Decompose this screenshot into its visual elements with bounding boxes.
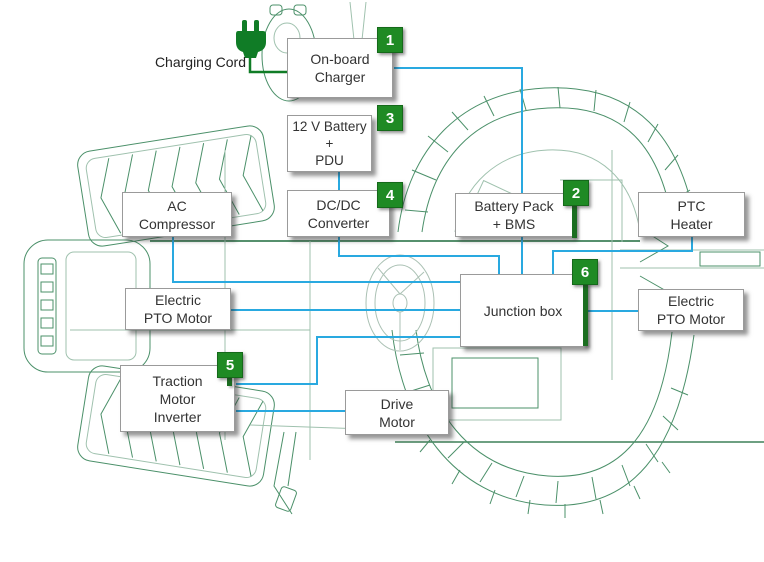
component-label: Battery Pack (474, 197, 553, 215)
component-box-drive-motor: Drive Motor (345, 390, 449, 435)
badge-5-stem (227, 377, 232, 386)
component-box-battery-pack-bms: Battery Pack + BMS (455, 193, 573, 237)
badge-4: 4 (377, 182, 403, 208)
badge-6: 6 (572, 259, 598, 285)
component-label: Charger (315, 68, 366, 86)
component-box-dcdc-converter: DC/DC Converter (287, 190, 390, 237)
component-label: + (326, 135, 334, 152)
component-label: Traction (152, 372, 202, 390)
component-label: Electric (155, 291, 201, 309)
component-label: Junction box (484, 302, 563, 320)
hv-connections (173, 68, 692, 411)
component-box-junction-box: Junction box (460, 274, 586, 347)
component-label: Converter (308, 214, 369, 232)
badge-2-stem (572, 205, 577, 238)
component-label: Electric (668, 292, 714, 310)
component-label: + BMS (493, 215, 535, 233)
component-box-electric-pto-motor-left: Electric PTO Motor (125, 288, 231, 330)
component-label: Motor (160, 390, 196, 408)
component-label: PTO Motor (144, 309, 212, 327)
component-label: Compressor (139, 215, 215, 233)
charging-cord-label: Charging Cord (150, 54, 246, 70)
component-label: On-board (310, 50, 369, 68)
badge-1: 1 (377, 27, 403, 53)
badge-3: 3 (377, 105, 403, 131)
component-box-electric-pto-motor-right: Electric PTO Motor (638, 289, 744, 331)
component-label: Inverter (154, 408, 201, 426)
diagram-canvas: Charging Cord On-board Charger 12 V Batt… (0, 0, 764, 562)
component-label: Drive (381, 395, 414, 413)
component-label: PDU (315, 152, 344, 169)
component-label: Heater (670, 215, 712, 233)
component-label: PTO Motor (657, 310, 725, 328)
component-label: AC (167, 197, 186, 215)
component-label: 12 V Battery (292, 118, 366, 135)
component-box-ptc-heater: PTC Heater (638, 192, 745, 237)
component-label: Motor (379, 413, 415, 431)
badge-5: 5 (217, 352, 243, 378)
component-box-12v-battery-pdu: 12 V Battery + PDU (287, 115, 372, 172)
component-label: DC/DC (316, 196, 360, 214)
badge-2: 2 (563, 180, 589, 206)
component-box-ac-compressor: AC Compressor (122, 192, 232, 237)
badge-6-stem (583, 284, 588, 346)
component-label: PTC (678, 197, 706, 215)
